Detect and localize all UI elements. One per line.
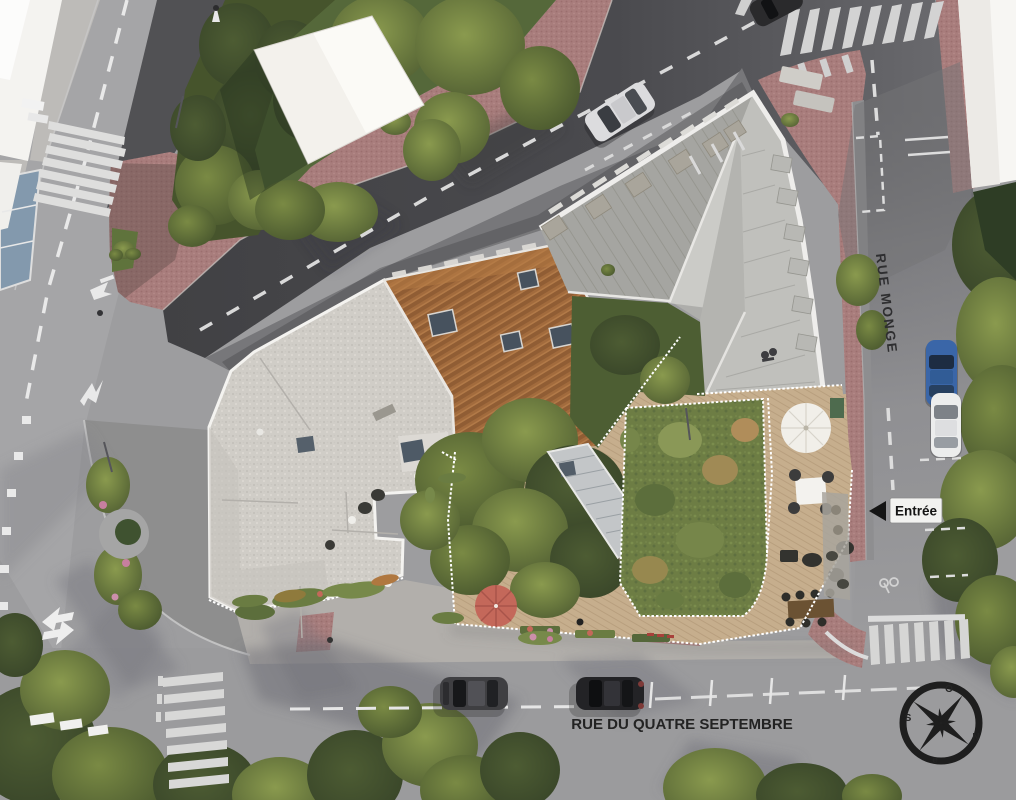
svg-text:S: S (905, 713, 912, 724)
svg-text:e: e (932, 755, 938, 766)
svg-text:RUE DU QUATRE SEPTEMBRE: RUE DU QUATRE SEPTEMBRE (571, 716, 792, 733)
svg-text:N: N (972, 732, 979, 743)
svg-text:Entrée: Entrée (895, 504, 938, 519)
svg-text:O: O (945, 684, 953, 695)
